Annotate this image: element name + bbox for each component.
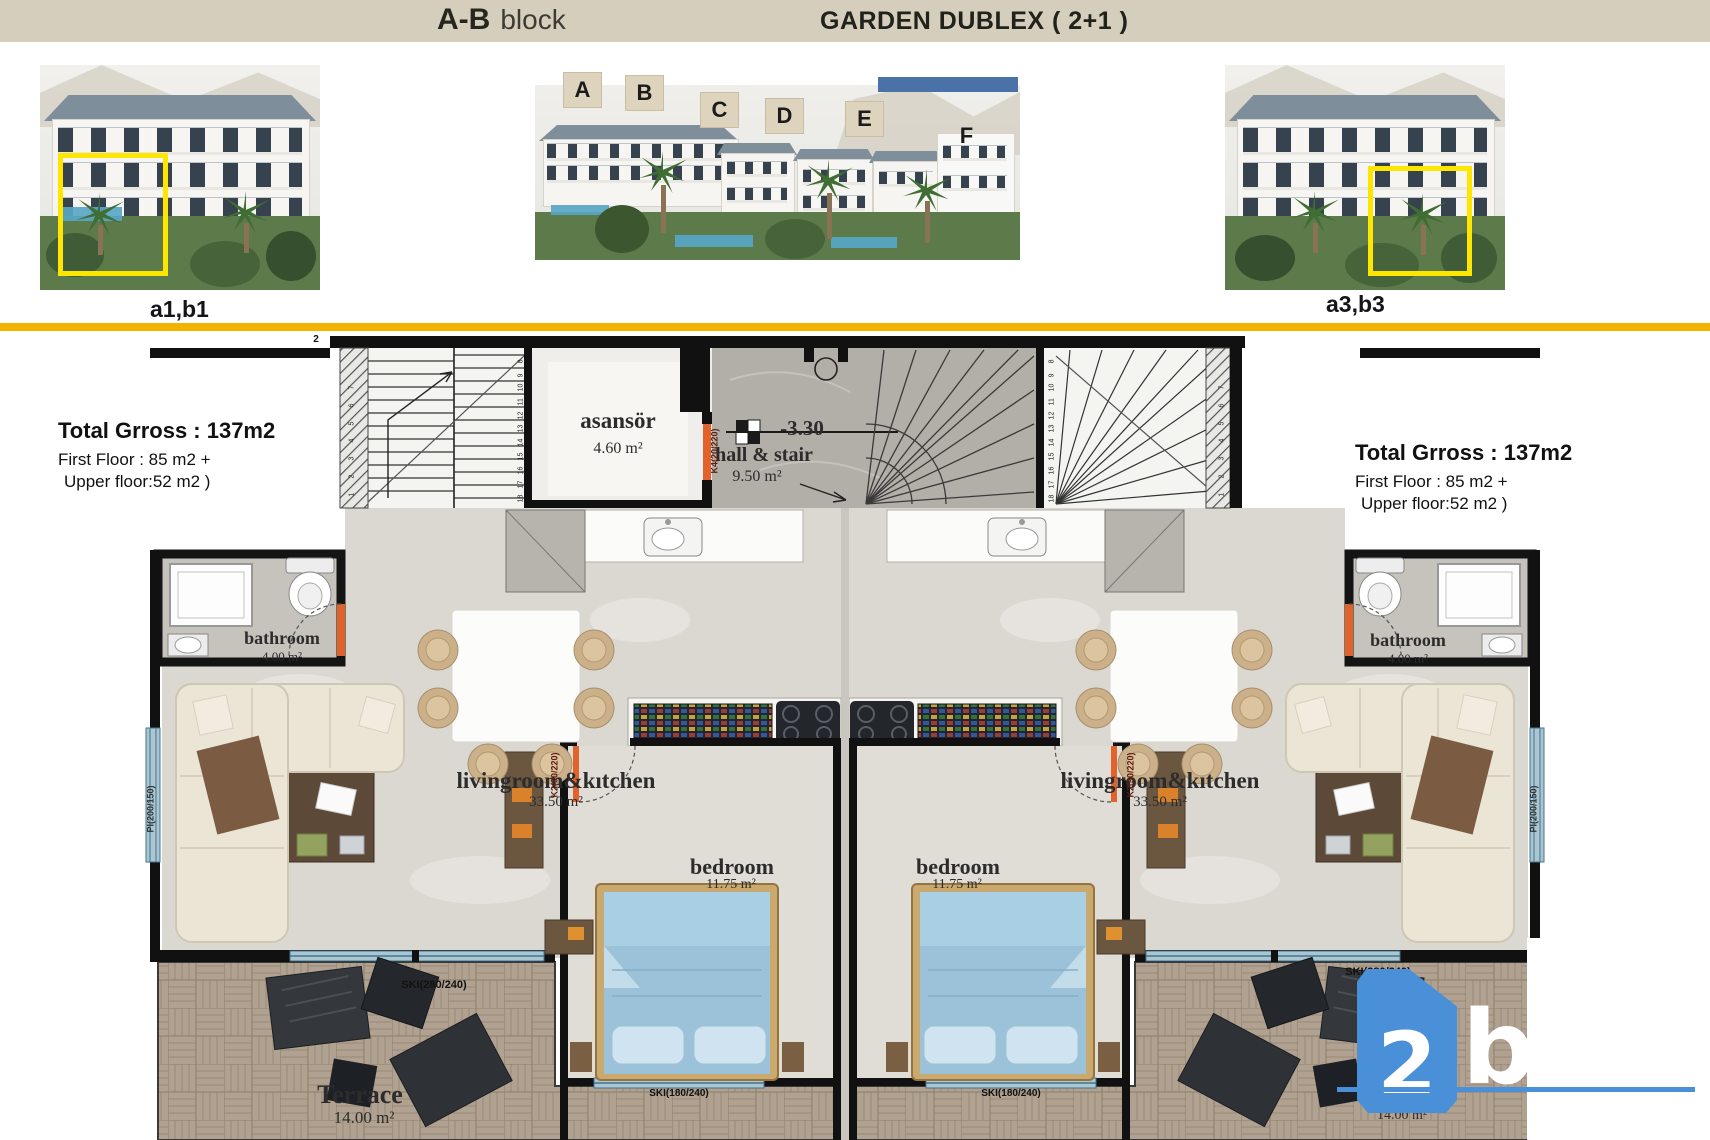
stair-number: 14 (517, 439, 524, 447)
nightstand (782, 1042, 804, 1072)
elevator-area: 4.60 m² (593, 440, 642, 458)
stair-number: 12 (517, 411, 524, 419)
elevator-label: asansör (580, 408, 655, 434)
stair-number: 6 (348, 403, 355, 407)
first-floor-left: First Floor : 85 m2 + (58, 450, 275, 470)
stair-number: 1 (1218, 493, 1225, 497)
stair-number: 3 (1218, 457, 1225, 461)
stair-number: 4 (1218, 439, 1225, 443)
terrace-left-label: Terrace (317, 1080, 403, 1110)
hall-elevation: -3.30 (780, 416, 824, 441)
bathroom-right-label: bathroom (1370, 630, 1446, 651)
total-gross-left: Total Grross : 137m2 (58, 418, 275, 444)
first-floor-right: First Floor : 85 m2 + (1355, 472, 1572, 492)
cabinet (545, 920, 593, 954)
bedroom-right-area: 11.75 m² (932, 877, 982, 893)
party-gap (841, 508, 849, 1140)
stair-number: 16 (517, 467, 524, 475)
floor-mark: 2 (313, 334, 319, 345)
stair-number: 7 (1218, 386, 1225, 390)
stair-numbers-left-inner: 89101112131415161718 (517, 356, 525, 502)
desk (286, 772, 374, 862)
door-dim-k2-right: K2(90/220) (1126, 752, 1136, 797)
stair-number: 9 (1048, 369, 1055, 377)
window-dim-pi-left: PI(200/150) (146, 785, 156, 832)
stair-number: 13 (1048, 425, 1055, 433)
stair-number: 7 (348, 386, 355, 390)
stair-number: 16 (1048, 467, 1055, 475)
bathroom-door (337, 604, 345, 656)
bathroom-left-label: bathroom (244, 628, 320, 649)
backsplash-mosaic (634, 704, 772, 740)
stair-number: 5 (348, 421, 355, 425)
stair-number: 13 (517, 425, 524, 433)
window-dim-ski280-left: SKI(280/240) (401, 979, 466, 991)
bedroom (560, 738, 841, 1140)
stair-number: 10 (517, 383, 524, 391)
upper-floor-left: Upper floor:52 m2 ) (58, 472, 275, 492)
stair-number: 17 (517, 481, 524, 489)
watermark-number: 2 (1377, 1021, 1437, 1113)
pillow (612, 1026, 684, 1064)
area-info-left: Total Grross : 137m2 First Floor : 85 m2… (58, 418, 275, 494)
window-dim-pi-right: PI(200/150) (1529, 785, 1539, 832)
stair-number: 18 (517, 495, 524, 503)
window-dim-ski180-left: SKI(180/240) (649, 1088, 708, 1099)
stair-number: 15 (517, 453, 524, 461)
total-gross-right: Total Grross : 137m2 (1355, 440, 1572, 466)
nightstand (570, 1042, 592, 1072)
door-dim-k2-left: K2(90/220) (550, 752, 560, 797)
stair-number: 11 (517, 397, 524, 405)
stair-number: 2 (1218, 475, 1225, 479)
watermark-line (1337, 1087, 1695, 1092)
staircase-right (1044, 348, 1242, 508)
stair-numbers-right-outer: 7654321 (1220, 384, 1224, 498)
area-info-right: Total Grross : 137m2 First Floor : 85 m2… (1355, 440, 1572, 516)
window-dim-ski180-right: SKI(180/240) (981, 1088, 1040, 1099)
stair-number: 14 (1048, 439, 1055, 447)
stair-number: 11 (1048, 397, 1055, 405)
living-right-label: livingroom&kıtchen (1061, 768, 1260, 794)
stair-number: 1 (348, 493, 355, 497)
stair-number: 12 (1048, 411, 1055, 419)
stair-number: 3 (348, 457, 355, 461)
terrace-left-area: 14.00 m² (334, 1108, 395, 1128)
hall-label: hall & stair (715, 444, 813, 467)
watermark-letter: b (1462, 998, 1535, 1100)
stair-number: 8 (1048, 356, 1055, 364)
stair-number: 6 (1218, 403, 1225, 407)
toilet (286, 558, 334, 616)
stair-number: 9 (517, 369, 524, 377)
stair-number: 15 (1048, 453, 1055, 461)
shower (170, 564, 252, 626)
stair-number: 18 (1048, 495, 1055, 503)
exterior-stub-wall (150, 348, 330, 358)
brochure-page: A-Bblock GARDEN DUBLEX ( 2+1 ) a1,b1 (0, 0, 1710, 1140)
hall-area: 9.50 m² (732, 468, 781, 486)
door-dim-k4: K4(20/220) (710, 428, 720, 473)
sofa-pillow (193, 695, 233, 735)
stair-numbers-right-inner: 89101112131415161718 (1048, 356, 1056, 502)
stair-number: 10 (1048, 383, 1055, 391)
stair-number: 5 (1218, 421, 1225, 425)
stair-number: 8 (517, 356, 524, 364)
staircase-left (340, 348, 530, 508)
bedroom-left-area: 11.75 m² (706, 877, 756, 893)
bed (596, 884, 778, 1080)
bathroom-right-area: 4.00 m² (1388, 651, 1428, 667)
stair-number: 17 (1048, 481, 1055, 489)
north-wall (330, 336, 1245, 348)
living-window (290, 950, 544, 962)
stair-numbers-left-outer: 7654321 (350, 384, 354, 498)
pillow (694, 1026, 766, 1064)
bathroom-left-area: 4.00 m² (262, 649, 302, 665)
living-right-area: 33.50 m² (1133, 794, 1187, 811)
bathroom-sink (168, 634, 208, 656)
stair-number: 2 (348, 475, 355, 479)
floor-plan-drawing (0, 0, 1710, 1140)
stair-number: 4 (348, 439, 355, 443)
upper-floor-right: Upper floor:52 m2 ) (1355, 494, 1572, 514)
